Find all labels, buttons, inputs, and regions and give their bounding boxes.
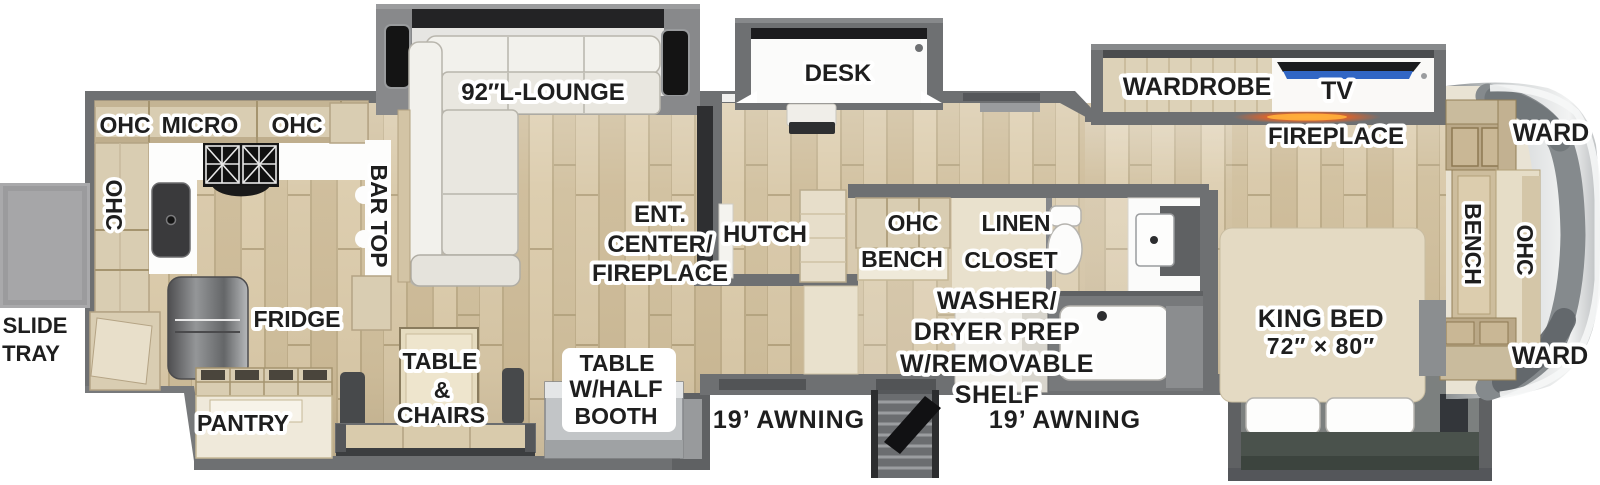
svg-text:W/REMOVABLE: W/REMOVABLE: [900, 350, 1094, 378]
svg-text:BAR TOP: BAR TOP: [366, 164, 392, 267]
svg-text:OHC: OHC: [99, 112, 150, 138]
svg-text:CHAIRS: CHAIRS: [397, 402, 485, 428]
svg-text:KING BED: KING BED: [1258, 305, 1384, 333]
svg-text:SHELF: SHELF: [955, 381, 1039, 409]
svg-text:TABLE: TABLE: [403, 348, 478, 374]
svg-text:WARD: WARD: [1512, 342, 1588, 370]
svg-text:OHC: OHC: [271, 112, 322, 138]
svg-text:OHC: OHC: [887, 210, 938, 236]
svg-text:FIREPLACE: FIREPLACE: [1268, 123, 1404, 150]
svg-text:CLOSET: CLOSET: [964, 247, 1057, 273]
svg-text:FIREPLACE: FIREPLACE: [592, 260, 728, 287]
svg-text:DESK: DESK: [805, 60, 872, 87]
svg-text:MICRO: MICRO: [162, 112, 239, 138]
svg-text:W/HALF: W/HALF: [569, 376, 662, 403]
svg-text:&: &: [434, 377, 451, 403]
svg-text:OHC: OHC: [1512, 224, 1538, 275]
svg-text:19’ AWNING: 19’ AWNING: [713, 406, 865, 434]
svg-text:BENCH: BENCH: [861, 246, 943, 272]
svg-text:TV: TV: [1321, 77, 1353, 105]
svg-text:TABLE: TABLE: [580, 350, 655, 376]
svg-text:FRIDGE: FRIDGE: [254, 306, 341, 332]
svg-text:BENCH: BENCH: [1460, 203, 1486, 285]
svg-text:72″ × 80″: 72″ × 80″: [1267, 333, 1375, 359]
svg-text:HUTCH: HUTCH: [723, 221, 807, 248]
svg-text:TRAY: TRAY: [2, 341, 60, 366]
svg-text:LINEN: LINEN: [982, 210, 1051, 236]
svg-text:WARDROBE: WARDROBE: [1123, 73, 1272, 101]
svg-text:WARD: WARD: [1513, 119, 1589, 147]
svg-text:PANTRY: PANTRY: [197, 410, 289, 436]
svg-text:WASHER/: WASHER/: [937, 287, 1057, 315]
svg-text:BOOTH: BOOTH: [574, 403, 657, 429]
svg-text:ENT.: ENT.: [634, 201, 686, 228]
svg-text:CENTER/: CENTER/: [607, 231, 713, 258]
svg-text:SLIDE: SLIDE: [3, 313, 68, 338]
svg-text:DRYER PREP: DRYER PREP: [914, 318, 1081, 346]
svg-text:OHC: OHC: [101, 179, 127, 230]
svg-text:19’ AWNING: 19’ AWNING: [989, 406, 1141, 434]
svg-text:92″L-LOUNGE: 92″L-LOUNGE: [461, 79, 625, 106]
